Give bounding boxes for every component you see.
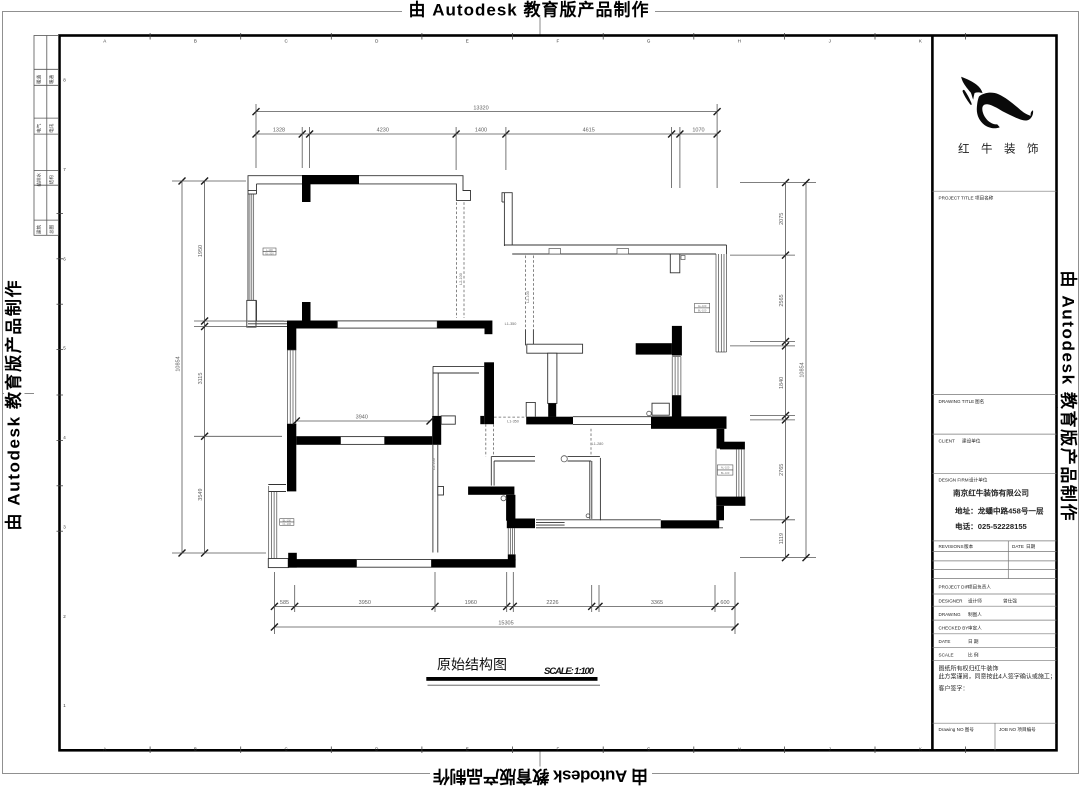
svg-text:K: K bbox=[919, 39, 922, 44]
svg-text:1328: 1328 bbox=[273, 128, 285, 134]
svg-text:F: F bbox=[557, 747, 560, 752]
svg-text:设计单位: 设计单位 bbox=[969, 477, 988, 484]
svg-text:13320: 13320 bbox=[473, 105, 488, 111]
svg-text:结构: 结构 bbox=[48, 175, 55, 184]
svg-text:1950: 1950 bbox=[198, 245, 204, 257]
svg-text:1960: 1960 bbox=[465, 600, 477, 606]
svg-text:3115: 3115 bbox=[198, 373, 204, 385]
svg-text:H: H bbox=[738, 747, 741, 752]
svg-text:2226: 2226 bbox=[546, 600, 558, 606]
svg-text:B: B bbox=[194, 39, 197, 44]
svg-text:K: K bbox=[919, 747, 922, 752]
svg-text:总图: 总图 bbox=[48, 225, 55, 234]
svg-text:项目名称: 项目名称 bbox=[975, 195, 994, 202]
svg-text:AL-100: AL-100 bbox=[721, 466, 730, 470]
svg-text:585: 585 bbox=[280, 600, 289, 606]
svg-text:电话：025-52228155: 电话：025-52228155 bbox=[955, 521, 1028, 531]
svg-text:BL-100: BL-100 bbox=[698, 309, 707, 313]
svg-text:此方案谨阅，同意按此4人签字确认或施工；: 此方案谨阅，同意按此4人签字确认或施工； bbox=[939, 673, 1056, 681]
svg-text:DATE: DATE bbox=[939, 639, 951, 644]
svg-text:3950: 3950 bbox=[359, 600, 371, 606]
svg-text:EL-200: EL-200 bbox=[265, 251, 274, 255]
svg-text:DATE: DATE bbox=[1012, 544, 1024, 549]
svg-text:曾仕强: 曾仕强 bbox=[1003, 597, 1017, 604]
svg-text:图纸所有权归红牛装饰: 图纸所有权归红牛装饰 bbox=[939, 665, 999, 673]
svg-text:15305: 15305 bbox=[498, 621, 513, 627]
svg-text:L2-100: L2-100 bbox=[432, 458, 436, 470]
svg-text:审定人: 审定人 bbox=[968, 625, 982, 632]
svg-text:BL-100: BL-100 bbox=[721, 471, 730, 475]
svg-text:由 Autodesk 教育版产品制作: 由 Autodesk 教育版产品制作 bbox=[433, 767, 648, 787]
svg-text:REVISIONS: REVISIONS bbox=[939, 544, 964, 549]
svg-text:建设单位: 建设单位 bbox=[962, 437, 981, 444]
svg-text:10854: 10854 bbox=[176, 356, 182, 371]
svg-text:制图人: 制图人 bbox=[968, 611, 982, 618]
svg-text:版本: 版本 bbox=[964, 543, 974, 550]
svg-text:3940: 3940 bbox=[356, 415, 368, 421]
svg-text:设计师: 设计师 bbox=[968, 597, 982, 604]
svg-text:E: E bbox=[466, 39, 469, 44]
svg-text:SCALE: 1:100: SCALE: 1:100 bbox=[544, 666, 595, 677]
svg-text:L-100: L-100 bbox=[266, 248, 273, 252]
svg-text:CL-100: CL-100 bbox=[283, 522, 292, 526]
svg-text:A: A bbox=[103, 747, 106, 752]
svg-text:600: 600 bbox=[720, 600, 729, 606]
svg-text:4615: 4615 bbox=[583, 128, 595, 134]
svg-text:南京红牛装饰有限公司: 南京红牛装饰有限公司 bbox=[953, 487, 1029, 497]
svg-text:10854: 10854 bbox=[800, 362, 806, 377]
svg-text:电气: 电气 bbox=[35, 123, 41, 132]
svg-text:1840: 1840 bbox=[779, 377, 785, 389]
svg-text:G: G bbox=[647, 39, 651, 44]
svg-text:B: B bbox=[194, 747, 197, 752]
svg-text:1070: 1070 bbox=[692, 128, 704, 134]
svg-text:L2-100: L2-100 bbox=[459, 273, 463, 285]
svg-text:CHECKED BY: CHECKED BY bbox=[939, 626, 969, 631]
svg-text:A: A bbox=[103, 39, 106, 44]
svg-text:H: H bbox=[738, 39, 741, 44]
svg-text:PROJECT TITLE: PROJECT TITLE bbox=[939, 196, 974, 201]
svg-text:SCALE: SCALE bbox=[939, 653, 954, 658]
svg-text:DESIGNER: DESIGNER bbox=[939, 598, 964, 603]
svg-text:2075: 2075 bbox=[779, 213, 785, 225]
svg-text:建筑: 建筑 bbox=[35, 225, 42, 234]
svg-text:红牛装饰: 红牛装饰 bbox=[958, 142, 1050, 156]
svg-text:L1-350: L1-350 bbox=[505, 322, 517, 326]
svg-text:1400: 1400 bbox=[475, 128, 487, 134]
svg-text:JOB NO 项目编号: JOB NO 项目编号 bbox=[999, 726, 1036, 733]
svg-text:1119: 1119 bbox=[779, 533, 785, 544]
svg-text:原始结构图: 原始结构图 bbox=[437, 657, 507, 673]
svg-text:4230: 4230 bbox=[377, 128, 389, 134]
svg-text:J: J bbox=[829, 39, 831, 44]
svg-text:2565: 2565 bbox=[779, 294, 785, 306]
svg-text:L2-100: L2-100 bbox=[526, 291, 530, 303]
svg-text:暖通: 暖通 bbox=[35, 75, 42, 84]
svg-text:L1-350: L1-350 bbox=[507, 420, 519, 424]
svg-text:PROJECT DIR: PROJECT DIR bbox=[939, 585, 970, 590]
svg-text:给排水: 给排水 bbox=[35, 172, 42, 186]
svg-text:2765: 2765 bbox=[779, 464, 785, 476]
svg-text:地址：龙蟠中路458号一层: 地址：龙蟠中路458号一层 bbox=[955, 506, 1044, 516]
svg-text:CLIENT: CLIENT bbox=[939, 438, 956, 443]
svg-text:L1-280: L1-280 bbox=[592, 442, 604, 446]
svg-text:J: J bbox=[829, 747, 831, 752]
svg-text:暖通: 暖通 bbox=[48, 75, 55, 84]
svg-text:3549: 3549 bbox=[198, 488, 204, 500]
svg-text:电讯: 电讯 bbox=[48, 123, 55, 132]
svg-text:F: F bbox=[557, 39, 560, 44]
svg-text:AL-100: AL-100 bbox=[698, 304, 707, 308]
svg-text:DRAWING TITLE: DRAWING TITLE bbox=[939, 399, 975, 404]
svg-text:比 例: 比 例 bbox=[968, 652, 979, 659]
svg-text:DESIGN FIRM: DESIGN FIRM bbox=[939, 478, 969, 483]
svg-text:E: E bbox=[466, 747, 469, 752]
svg-text:客户签字：: 客户签字： bbox=[939, 685, 969, 693]
svg-text:G: G bbox=[647, 747, 651, 752]
svg-text:3365: 3365 bbox=[651, 600, 663, 606]
svg-text:DRAWING: DRAWING bbox=[939, 612, 961, 617]
svg-text:图名: 图名 bbox=[975, 398, 984, 405]
svg-text:项目负责人: 项目负责人 bbox=[968, 584, 991, 591]
